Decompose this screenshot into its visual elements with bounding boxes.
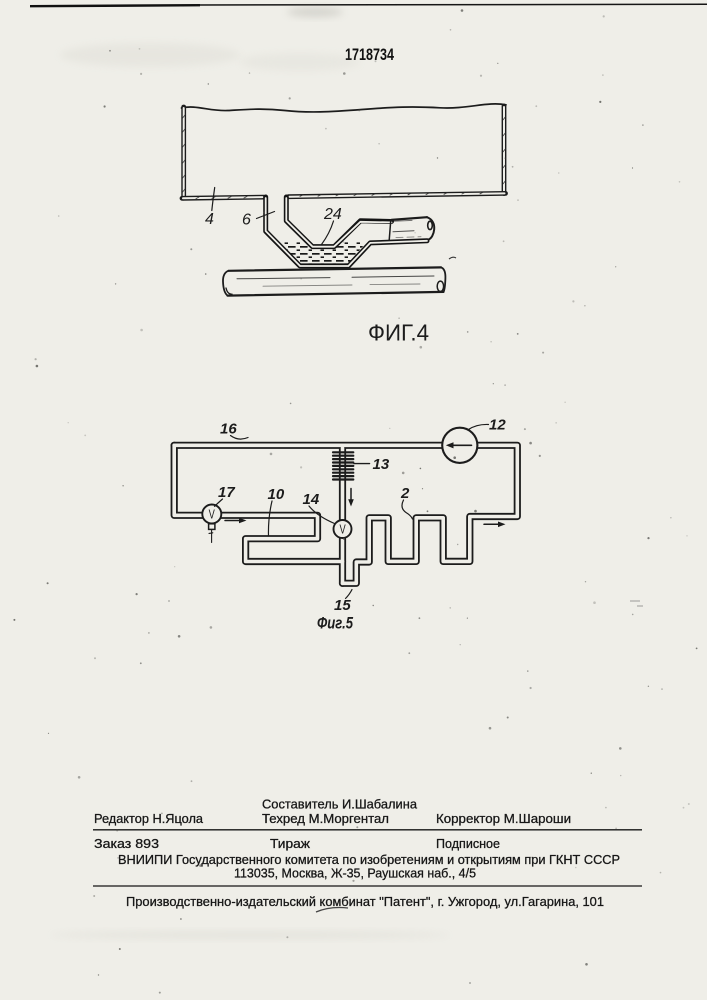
svg-text:15: 15 — [334, 597, 351, 614]
svg-text:Производственно-издательский к: Производственно-издательский комбинат "П… — [126, 895, 604, 909]
svg-text:17: 17 — [218, 484, 235, 501]
svg-text:V: V — [340, 522, 346, 537]
svg-text:Тираж: Тираж — [270, 837, 311, 851]
svg-text:ВНИИПИ Государственного комите: ВНИИПИ Государственного комитета по изоб… — [118, 853, 620, 867]
svg-text:V: V — [209, 507, 215, 522]
svg-text:4: 4 — [205, 211, 214, 228]
svg-text:14: 14 — [303, 491, 320, 508]
svg-text:2: 2 — [400, 485, 410, 502]
svg-text:Заказ 893: Заказ 893 — [94, 837, 159, 851]
svg-text:12: 12 — [489, 417, 506, 434]
svg-text:16: 16 — [220, 421, 237, 438]
svg-text:Фиг.5: Фиг.5 — [317, 614, 353, 633]
svg-text:Составитель И.Шабалина: Составитель И.Шабалина — [262, 798, 417, 812]
svg-text:Подписное: Подписное — [436, 837, 500, 851]
svg-text:10: 10 — [268, 486, 285, 503]
svg-text:13: 13 — [373, 456, 390, 473]
svg-text:24: 24 — [323, 206, 342, 223]
svg-text:Редактор Н.Яцола: Редактор Н.Яцола — [94, 812, 203, 826]
svg-text:ФИГ.4: ФИГ.4 — [368, 320, 429, 346]
svg-text:6: 6 — [242, 212, 251, 229]
svg-text:Корректор М.Шароши: Корректор М.Шароши — [436, 812, 571, 826]
svg-text:113035, Москва, Ж-35, Раушская: 113035, Москва, Ж-35, Раушская наб., 4/5 — [234, 867, 476, 881]
svg-text:Техред М.Моргентал: Техред М.Моргентал — [262, 812, 389, 826]
